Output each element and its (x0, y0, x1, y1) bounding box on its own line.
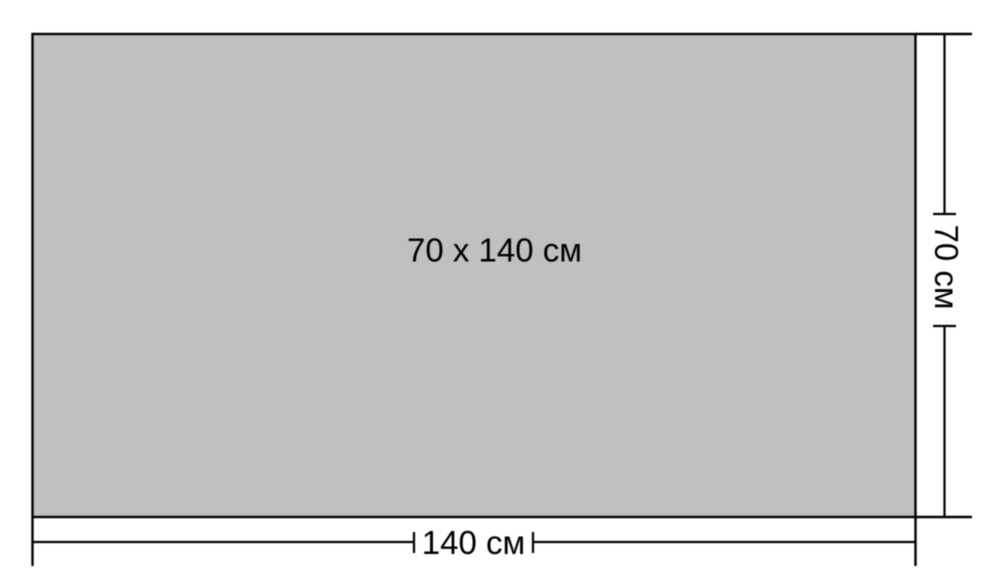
svg-text:140 см: 140 см (422, 524, 525, 561)
svg-text:70 x 140 см: 70 x 140 см (407, 232, 582, 269)
svg-text:70 см: 70 см (928, 224, 965, 309)
